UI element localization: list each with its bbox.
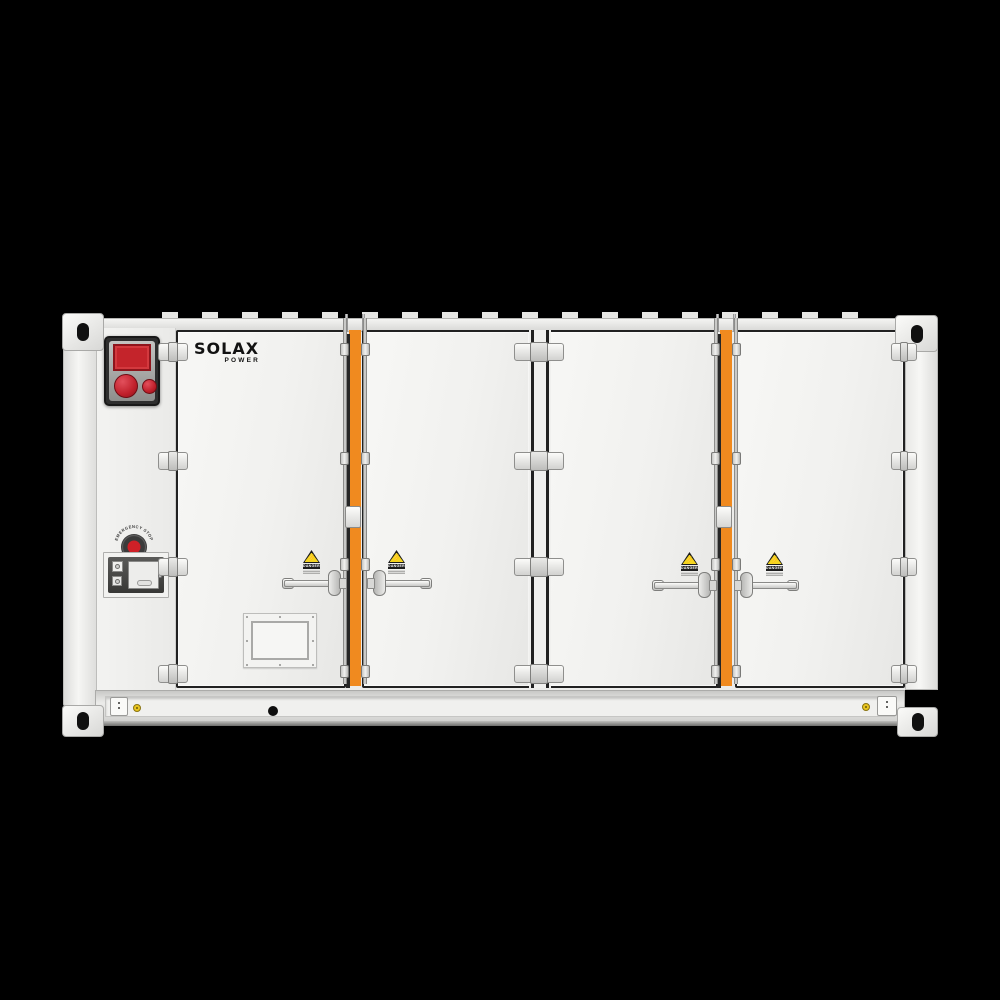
door-hinge (514, 558, 564, 576)
locking-rod (734, 318, 738, 684)
right-corner-post (905, 328, 938, 690)
bottom-edge (95, 721, 905, 726)
center-door-junction (529, 330, 551, 688)
door-hinge (891, 558, 917, 576)
alarm-indicator-box (104, 336, 160, 406)
handle-bar (384, 580, 430, 587)
corner-casting-top-left (62, 313, 104, 351)
bottom-rail-groove (105, 696, 895, 717)
brand-subname: POWER (194, 357, 260, 365)
handle-link (367, 578, 375, 589)
handle-bar (751, 582, 797, 589)
door-hinge (514, 343, 564, 361)
door-hinge (891, 452, 917, 470)
left-corner-post (63, 346, 97, 706)
door-hinge (891, 665, 917, 683)
lock-knob (115, 564, 120, 569)
lock-switch[interactable] (112, 576, 122, 586)
rod-guide (732, 452, 741, 465)
vent-plug-plate (877, 696, 897, 716)
door-hinge (514, 665, 564, 683)
alarm-button-large[interactable] (114, 374, 138, 398)
latch-housing (128, 561, 159, 589)
casting-hole (912, 713, 924, 731)
casting-hole (911, 325, 923, 343)
casting-hole (77, 712, 89, 730)
rod-guide (711, 343, 720, 356)
rod-cam-keeper (716, 506, 732, 528)
handle-link (709, 580, 717, 591)
handle-bar (654, 582, 700, 589)
lightning-icon: ⚡ (388, 553, 405, 564)
door-hinge (158, 665, 188, 683)
handle-link (339, 578, 347, 589)
rod-guide (732, 343, 741, 356)
locking-rod-assembly (713, 330, 739, 688)
locking-rod (343, 318, 347, 684)
rod-guide (711, 665, 720, 678)
lock-recess (108, 557, 164, 593)
lock-knob (115, 579, 120, 584)
bottom-rail (95, 690, 905, 722)
door-2 (362, 330, 531, 688)
door-gasket (546, 330, 549, 688)
door-gasket (531, 330, 534, 688)
screws (246, 616, 248, 618)
locking-rod-assembly (342, 330, 368, 688)
warning-triangle-icon: ⚡ (303, 550, 320, 563)
rod-guide (340, 665, 349, 678)
corner-casting-bottom-left (62, 705, 104, 737)
yellow-round-label (133, 704, 141, 712)
access-panel (243, 613, 317, 668)
rod-guide (340, 452, 349, 465)
rod-guide (361, 452, 370, 465)
door-4-handle[interactable] (733, 570, 799, 600)
lightning-icon: ⚡ (766, 555, 783, 566)
brand-logo: SOLAX POWER (194, 340, 260, 365)
door-hinge (158, 558, 188, 576)
locking-rod (714, 318, 718, 684)
access-panel-inner (251, 621, 309, 660)
alarm-face (109, 341, 155, 401)
rod-guide (732, 665, 741, 678)
warning-triangle-icon: ⚡ (766, 552, 783, 565)
warning-triangle-icon: ⚡ (388, 550, 405, 563)
door-4 (735, 330, 905, 688)
brand-name: SOLAX (194, 340, 260, 357)
lightning-icon: ⚡ (303, 553, 320, 564)
door-3-handle[interactable] (652, 570, 718, 600)
alarm-display-screen (113, 344, 151, 371)
door-hinge (158, 452, 188, 470)
door-hinge (514, 452, 564, 470)
drain-hole (268, 706, 278, 716)
alarm-button-small[interactable] (142, 379, 157, 394)
locking-rod (363, 318, 367, 684)
rod-cam-keeper (345, 506, 361, 528)
casting-hole (77, 323, 89, 341)
corner-casting-bottom-right (897, 707, 938, 737)
lock-switch[interactable] (112, 561, 123, 572)
handle-bar (284, 580, 330, 587)
latch-slot (137, 580, 152, 586)
rod-guide (361, 343, 370, 356)
door-hinge (158, 343, 188, 361)
door-1-handle[interactable] (282, 568, 348, 598)
rod-guide (711, 452, 720, 465)
vent-plug-plate (110, 697, 128, 716)
door-3 (545, 330, 718, 688)
yellow-round-label (862, 703, 870, 711)
door-2-handle[interactable] (366, 568, 432, 598)
warning-triangle-icon: ⚡ (681, 552, 698, 565)
storage-container: SOLAX POWER (62, 310, 938, 737)
rod-guide (361, 665, 370, 678)
door-hinge (891, 343, 917, 361)
rod-guide (340, 343, 349, 356)
scene-background: SOLAX POWER (0, 0, 1000, 1000)
lightning-icon: ⚡ (681, 555, 698, 566)
handle-link (734, 580, 742, 591)
